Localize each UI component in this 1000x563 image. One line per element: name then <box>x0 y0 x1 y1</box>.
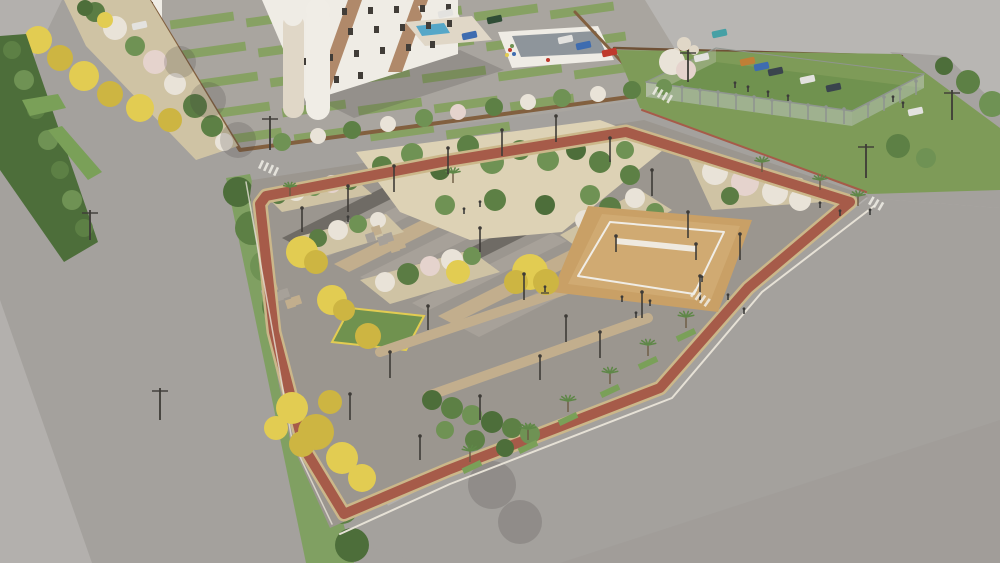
scene-svg <box>0 0 1000 563</box>
rendering-canvas <box>0 0 1000 563</box>
